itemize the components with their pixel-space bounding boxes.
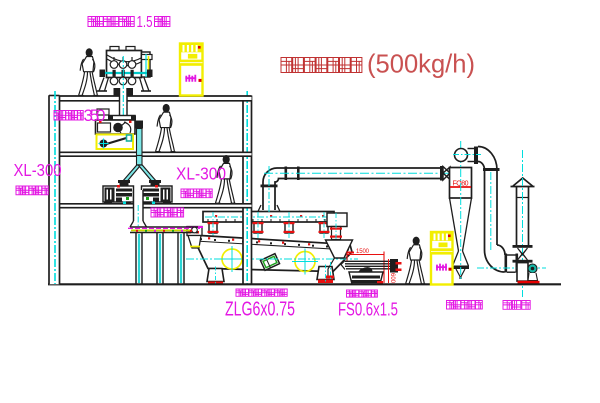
svg-text:1500: 1500 xyxy=(356,249,370,255)
svg-text:350: 350 xyxy=(84,106,106,125)
svg-text:600: 600 xyxy=(389,273,395,284)
svg-text:XL-300: XL-300 xyxy=(176,164,226,184)
svg-text:ZLG6x0.75: ZLG6x0.75 xyxy=(225,299,295,321)
svg-text:FS0.6x1.5: FS0.6x1.5 xyxy=(338,300,398,320)
svg-text:XL-300: XL-300 xyxy=(14,160,62,180)
svg-text:(500kg/h): (500kg/h) xyxy=(367,49,475,79)
svg-text:1.5: 1.5 xyxy=(137,14,153,31)
